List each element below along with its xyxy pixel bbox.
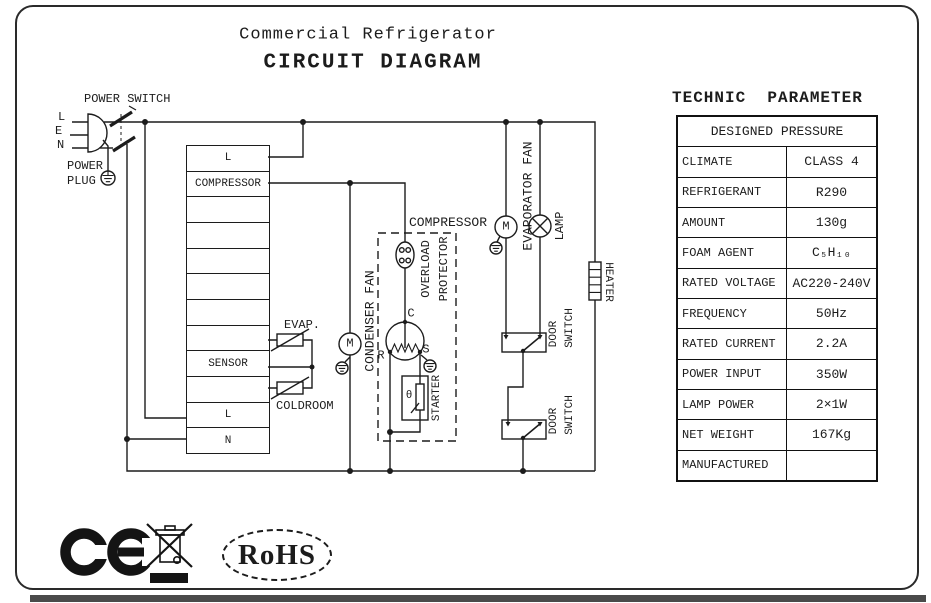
terminal-row: L bbox=[187, 403, 269, 429]
table-row: REFRIGERANTR290 bbox=[678, 178, 876, 208]
earth-ground-icon bbox=[421, 355, 436, 372]
table-row: RATED CURRENT2.2A bbox=[678, 329, 876, 359]
table-row: LAMP POWER2×1W bbox=[678, 390, 876, 420]
earth-ground-icon bbox=[490, 236, 502, 254]
starter-label: STARTER bbox=[431, 375, 443, 421]
rohs-badge: RoHS bbox=[222, 529, 332, 581]
terminal-row: L bbox=[187, 146, 269, 172]
door-switch-2-label-switch: SWITCH bbox=[564, 395, 576, 435]
door-switch-2-label-door: DOOR bbox=[548, 408, 560, 434]
terminal-row bbox=[187, 249, 269, 275]
table-row: NET WEIGHT167Kg bbox=[678, 420, 876, 450]
terminal-r-label: R bbox=[377, 349, 384, 362]
earth-ground-icon bbox=[101, 171, 115, 185]
circuit-diagram-page: Commercial Refrigerator CIRCUIT DIAGRAM bbox=[0, 0, 931, 603]
table-row: POWER INPUT350W bbox=[678, 360, 876, 390]
power-plug-label-2: PLUG bbox=[67, 175, 96, 188]
parameter-table-heading: TECHNIC PARAMETER bbox=[672, 89, 863, 107]
door-switch-1-label-door: DOOR bbox=[548, 321, 560, 347]
terminal-row bbox=[187, 300, 269, 326]
terminal-row bbox=[187, 274, 269, 300]
terminal-s-label: S bbox=[422, 343, 429, 356]
overload-label-2: PROTECTOR bbox=[437, 237, 451, 302]
lamp-label: LAMP bbox=[553, 212, 567, 241]
heater-label: HEATER bbox=[602, 262, 614, 302]
table-row: MANUFACTURED bbox=[678, 451, 876, 480]
terminal-row: N bbox=[187, 428, 269, 453]
terminal-row bbox=[187, 197, 269, 223]
rohs-label: RoHS bbox=[238, 539, 316, 572]
pin-l-label: L bbox=[58, 111, 65, 124]
designed-pressure-cell: DESIGNED PRESSURE bbox=[678, 117, 876, 146]
table-row: FOAM AGENTC₅H₁₀ bbox=[678, 238, 876, 268]
terminal-c-label: C bbox=[407, 307, 414, 320]
compressor-motor-symbol bbox=[386, 322, 424, 360]
power-switch-symbol bbox=[110, 106, 136, 151]
compressor-box-label: COMPRESSOR bbox=[409, 216, 487, 230]
evaporator-motor-letter: M bbox=[502, 220, 509, 233]
pin-n-label: N bbox=[57, 139, 64, 152]
heater-symbol bbox=[589, 262, 601, 300]
terminal-row bbox=[187, 377, 269, 403]
terminal-row bbox=[187, 223, 269, 249]
door-switch-1-label-switch: SWITCH bbox=[564, 308, 576, 348]
pin-e-label: E bbox=[55, 125, 62, 138]
table-row: CLIMATECLASS 4 bbox=[678, 147, 876, 177]
overload-protector-symbol bbox=[396, 242, 414, 268]
starter-theta-label: θ bbox=[406, 390, 413, 402]
terminal-row bbox=[187, 326, 269, 352]
parameter-table: DESIGNED PRESSURE CLIMATECLASS 4 REFRIGE… bbox=[676, 115, 878, 482]
ce-mark-icon bbox=[66, 534, 163, 571]
terminal-row: SENSOR bbox=[187, 351, 269, 377]
table-row: FREQUENCY50Hz bbox=[678, 299, 876, 329]
table-row: RATED VOLTAGEAC220-240V bbox=[678, 269, 876, 299]
power-plug-label-1: POWER bbox=[67, 160, 103, 173]
table-row: AMOUNT130g bbox=[678, 208, 876, 238]
condenser-fan-label: CONDENSER FAN bbox=[363, 270, 378, 371]
overload-label-1: OVERLOAD bbox=[419, 240, 433, 298]
sensor-wiring bbox=[268, 329, 312, 399]
coldroom-sensor-label: COLDROOM bbox=[276, 400, 334, 413]
condenser-motor-letter: M bbox=[346, 337, 353, 350]
power-switch-label: POWER SWITCH bbox=[84, 93, 170, 106]
earth-ground-icon bbox=[336, 357, 350, 374]
evap-sensor-label: EVAP. bbox=[284, 319, 320, 332]
terminal-row: COMPRESSOR bbox=[187, 172, 269, 198]
evaporator-fan-label: EVAPORATOR FAN bbox=[521, 141, 536, 250]
terminal-block: L COMPRESSOR SENSOR L N bbox=[186, 145, 270, 454]
